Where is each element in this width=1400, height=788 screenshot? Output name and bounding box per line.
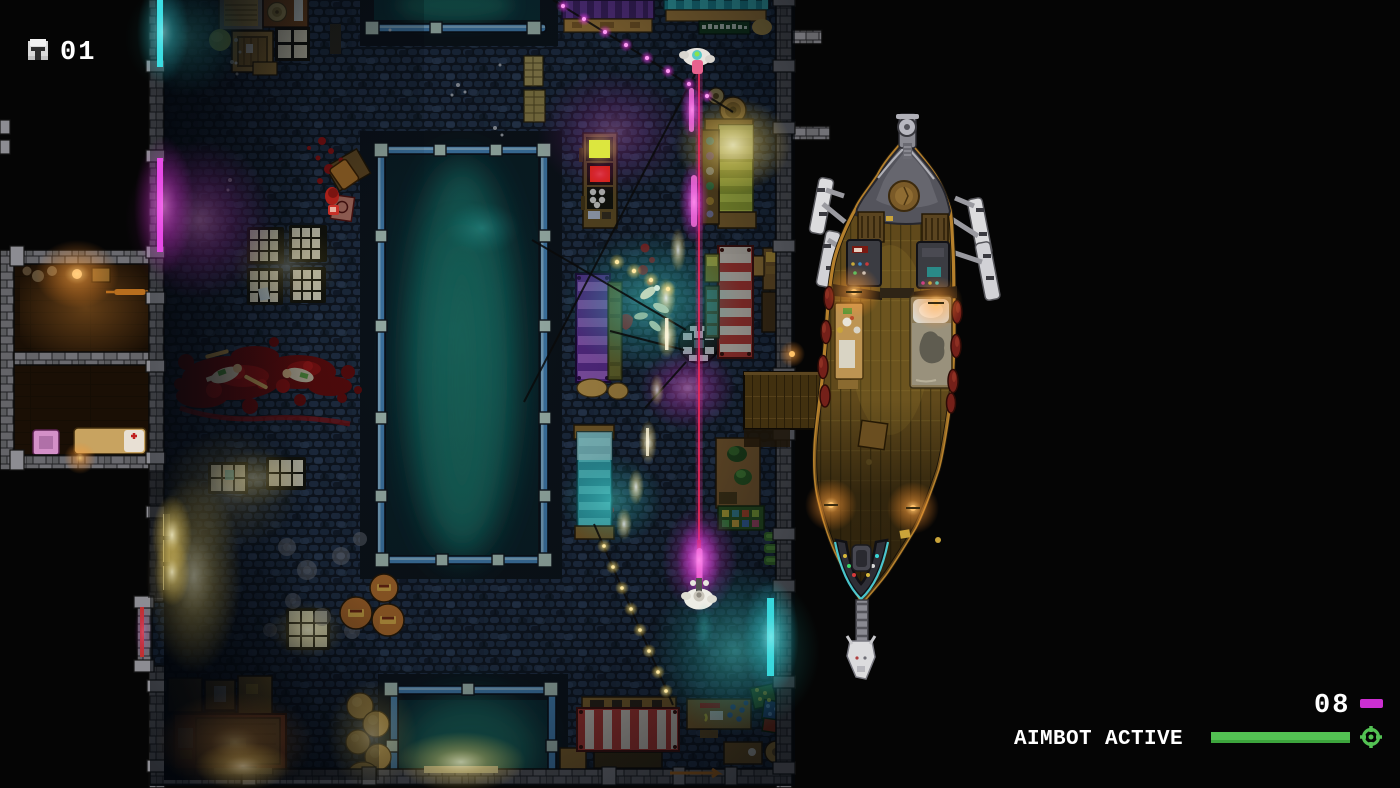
- svg-text:AIMBOT ACTIVE: AIMBOT ACTIVE: [1014, 728, 1183, 751]
- svg-text:01: 01: [60, 38, 96, 68]
- svg-text:08: 08: [1314, 691, 1350, 721]
